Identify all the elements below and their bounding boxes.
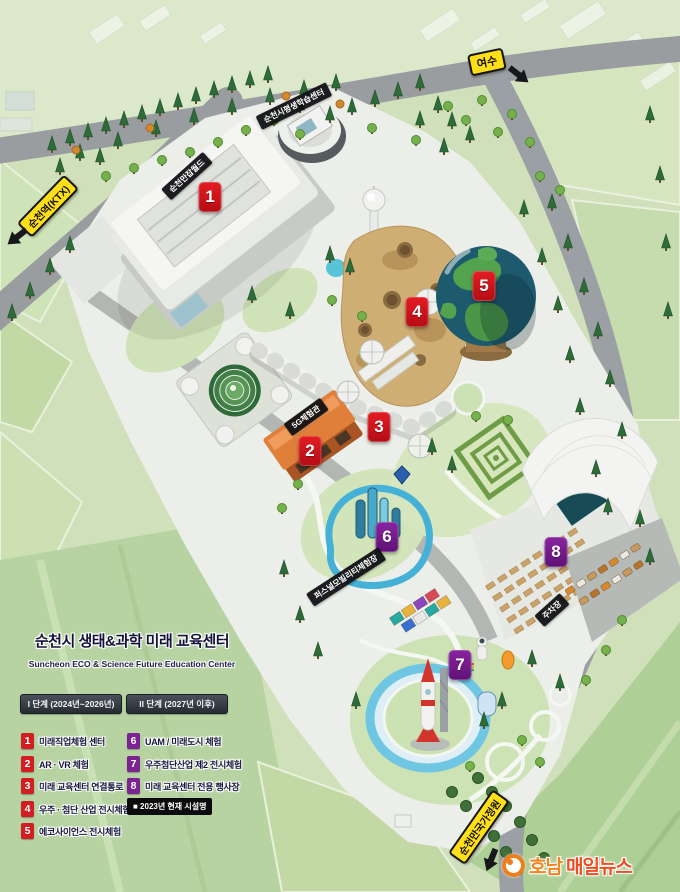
- legend-panel: 순천시 생태&과학 미래 교육센터 Suncheon ECO & Science…: [14, 626, 250, 872]
- map-marker-8: 8: [545, 537, 568, 567]
- map-marker-4: 4: [406, 297, 429, 327]
- map-marker-3: 3: [368, 412, 391, 442]
- legend-item-5: 5 에코사이언스 전시체험: [21, 823, 121, 839]
- legend-num-6: 6: [127, 733, 140, 749]
- legend-phase1-header: I 단계 (2024년~2026년): [20, 694, 122, 714]
- page-title: 순천시 생태&과학 미래 교육센터: [14, 630, 250, 651]
- legend-item-2: 2 AR · VR 체험: [21, 756, 89, 772]
- legend-num-7: 7: [127, 756, 140, 772]
- map-marker-2: 2: [299, 436, 322, 466]
- legend-item-7: 7 우주첨단산업 제2 전시체험: [127, 756, 242, 772]
- legend-note: ■ 2023년 현재 시설명: [127, 798, 212, 815]
- news-logo-text-2: 매일뉴스: [566, 852, 632, 879]
- map-marker-7: 7: [449, 650, 472, 680]
- legend-item-1: 1 미래직업체험 센터: [21, 733, 105, 749]
- page-subtitle: Suncheon ECO & Science Future Education …: [14, 659, 250, 669]
- legend-num-1: 1: [21, 733, 34, 749]
- legend-num-3: 3: [21, 778, 34, 794]
- legend-num-5: 5: [21, 823, 34, 839]
- honam-daily-news-logo: 호남 매일뉴스: [502, 852, 632, 879]
- map-marker-6: 6: [376, 522, 399, 552]
- legend-num-4: 4: [21, 801, 34, 817]
- legend-num-8: 8: [127, 778, 140, 794]
- legend-item-8: 8 미래 교육센터 전용 행사장: [127, 778, 239, 794]
- news-logo-icon: [502, 854, 525, 877]
- legend-item-6: 6 UAM / 미래도시 체험: [127, 733, 221, 749]
- news-logo-text-1: 호남: [529, 852, 562, 879]
- legend-num-2: 2: [21, 756, 34, 772]
- site-map-poster: 1 2 3 4 5 6 7 8 순천만잡월드 순천시평생학습센터 5G체험관 퍼…: [0, 0, 680, 892]
- legend-item-4: 4 우주 · 첨단 산업 전시체험: [21, 801, 130, 817]
- map-marker-1: 1: [199, 182, 222, 212]
- legend-phase2-header: II 단계 (2027년 이후): [126, 694, 228, 714]
- legend-item-3: 3 미래 교육센터 연결통로: [21, 778, 123, 794]
- map-marker-5: 5: [473, 271, 496, 301]
